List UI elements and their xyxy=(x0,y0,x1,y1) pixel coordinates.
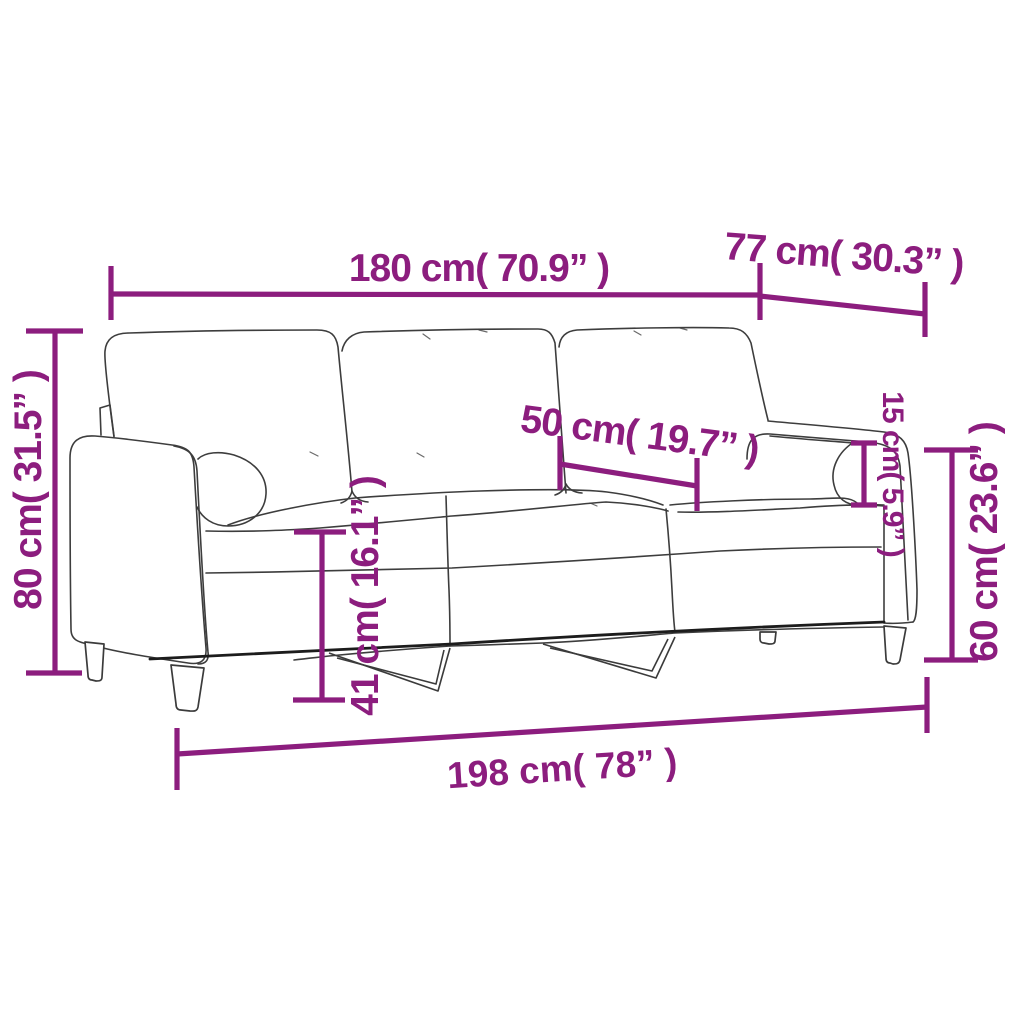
svg-text:180 cm( 70.9” ): 180 cm( 70.9” ) xyxy=(349,247,609,290)
svg-text:60 cm( 23.6” ): 60 cm( 23.6” ) xyxy=(963,422,1006,662)
svg-text:41 cm( 16.1” ): 41 cm( 16.1” ) xyxy=(344,476,387,716)
svg-text:80 cm( 31.5” ): 80 cm( 31.5” ) xyxy=(7,370,50,610)
svg-text:15 cm( 5.9” ): 15 cm( 5.9” ) xyxy=(876,391,909,556)
